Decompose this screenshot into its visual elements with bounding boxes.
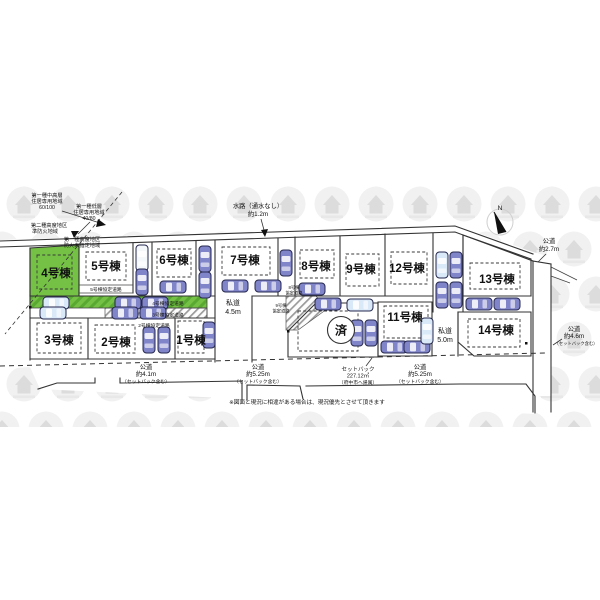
svg-text:協定道路: 協定道路 xyxy=(285,290,303,297)
svg-text:私道: 私道 xyxy=(438,326,452,335)
car-icon xyxy=(436,252,448,278)
car-icon xyxy=(436,282,448,308)
lot-1-label: 1号棟 xyxy=(176,333,206,347)
svg-text:（府中市へ帰属）: （府中市へ帰属） xyxy=(339,379,377,386)
car-icon xyxy=(450,282,462,308)
svg-text:準防火地域: 準防火地域 xyxy=(32,227,58,235)
svg-text:第二種高度地区: 第二種高度地区 xyxy=(31,221,67,229)
lot-14-label: 14号棟 xyxy=(478,323,514,337)
svg-text:住居専用地域: 住居専用地域 xyxy=(73,208,104,216)
car-icon xyxy=(222,280,248,292)
car-icon xyxy=(199,272,211,298)
sold-badge: 済 xyxy=(328,317,355,344)
car-icon xyxy=(40,307,66,319)
car-icon xyxy=(365,320,377,346)
svg-text:水路（通水なし）: 水路（通水なし） xyxy=(233,201,283,210)
svg-text:第一種高度地区: 第一種高度地区 xyxy=(64,235,100,243)
svg-text:約1.2m: 約1.2m xyxy=(248,209,268,218)
north-label: N xyxy=(498,205,503,212)
svg-text:4.5m: 4.5m xyxy=(225,309,241,316)
svg-text:第一種低層: 第一種低層 xyxy=(76,202,102,210)
svg-text:住居専用地域: 住居専用地域 xyxy=(31,197,62,205)
svg-text:協定道路: 協定道路 xyxy=(272,308,290,315)
svg-text:第一種中高層: 第一種中高層 xyxy=(31,191,62,199)
svg-text:約4.6m: 約4.6m xyxy=(564,331,584,340)
site-plan-page: 4号棟 5号棟 6号棟 7号棟 8号棟 9号棟 12号棟 13号棟 3号棟 2号… xyxy=(0,0,600,600)
lot-6-label: 6号棟 xyxy=(159,253,189,267)
lot-13-label: 13号棟 xyxy=(479,272,515,286)
car-icon xyxy=(280,250,292,276)
svg-text:約5.25m: 約5.25m xyxy=(246,369,270,378)
car-icon xyxy=(136,269,148,295)
svg-text:5号棟協定道路: 5号棟協定道路 xyxy=(90,286,122,293)
svg-text:60/100: 60/100 xyxy=(39,205,55,211)
svg-text:（セットバック含む）: （セットバック含む） xyxy=(234,378,282,385)
lot-2-label: 2号棟 xyxy=(101,335,131,349)
car-icon xyxy=(160,281,186,293)
car-icon xyxy=(136,245,148,271)
lot-8-label: 8号棟 xyxy=(301,259,331,273)
lot-5-label: 5号棟 xyxy=(91,259,121,273)
car-icon xyxy=(381,341,407,353)
svg-text:約2.7m: 約2.7m xyxy=(539,244,559,253)
svg-text:3号棟協定道路: 3号棟協定道路 xyxy=(152,312,184,319)
svg-text:公道: 公道 xyxy=(568,324,581,333)
svg-text:5.0m: 5.0m xyxy=(437,337,453,344)
site-plan-image: 4号棟 5号棟 6号棟 7号棟 8号棟 9号棟 12号棟 13号棟 3号棟 2号… xyxy=(0,0,600,600)
car-icon xyxy=(143,327,155,353)
svg-text:約5.25m: 約5.25m xyxy=(408,369,432,378)
svg-text:40/80: 40/80 xyxy=(83,216,96,222)
car-icon xyxy=(421,318,433,344)
svg-text:227.12㎡: 227.12㎡ xyxy=(347,372,370,380)
svg-text:公道: 公道 xyxy=(543,236,556,245)
svg-text:2号棟協定道路: 2号棟協定道路 xyxy=(138,322,170,329)
lot-9-label: 9号棟 xyxy=(346,262,376,276)
car-icon xyxy=(315,298,341,310)
svg-text:公道: 公道 xyxy=(414,362,427,371)
svg-text:公道: 公道 xyxy=(252,362,265,371)
svg-text:公道: 公道 xyxy=(140,362,153,371)
svg-text:（セットバック含む）: （セットバック含む） xyxy=(122,378,170,385)
svg-text:4号棟協定道路: 4号棟協定道路 xyxy=(152,300,184,307)
car-icon xyxy=(255,280,281,292)
svg-text:（セットバック含む）: （セットバック含む） xyxy=(396,378,444,385)
car-icon xyxy=(112,307,138,319)
car-icon xyxy=(199,246,211,272)
lot-3-label: 3号棟 xyxy=(44,333,74,347)
svg-text:済: 済 xyxy=(335,323,348,338)
car-icon xyxy=(347,299,373,311)
svg-text:私道: 私道 xyxy=(226,298,240,307)
car-icon xyxy=(466,298,492,310)
lot-12-label: 12号棟 xyxy=(389,261,425,275)
car-icon xyxy=(299,283,325,295)
car-icon xyxy=(158,327,170,353)
car-icon xyxy=(450,252,462,278)
svg-text:約4.1m: 約4.1m xyxy=(136,369,156,378)
svg-text:防火未指定地域: 防火未指定地域 xyxy=(64,241,100,249)
car-icon xyxy=(494,298,520,310)
disclaimer-note: ※図面と現況に相違がある場合は、現況優先とさせて頂きます xyxy=(229,398,385,406)
lot-4-label: 4号棟 xyxy=(41,266,71,280)
lot-11-label: 11号棟 xyxy=(387,310,423,324)
svg-text:（セットバック含む）: （セットバック含む） xyxy=(555,340,598,347)
svg-text:セットバック: セットバック xyxy=(341,366,374,373)
lot-7-label: 7号棟 xyxy=(230,253,260,267)
